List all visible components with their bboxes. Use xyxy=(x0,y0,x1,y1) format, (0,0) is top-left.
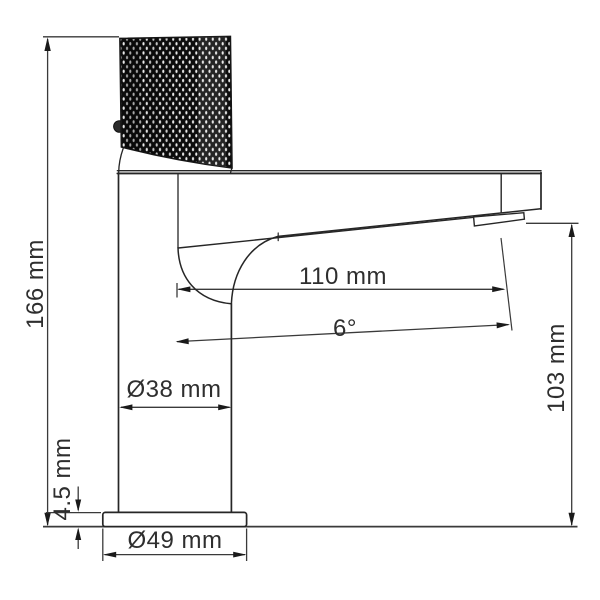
faucet-dimension-drawing: 166 mm 4.5 mm Ø38 mm Ø49 mm 110 mm 6° 10… xyxy=(0,0,600,600)
base-plate xyxy=(103,512,247,526)
label-reach-110: 110 mm xyxy=(299,265,387,289)
handle-neck-left xyxy=(119,148,124,172)
spout-fillet-left xyxy=(178,248,231,304)
dimension-body-diameter-38 xyxy=(119,404,231,410)
faucet-handle xyxy=(114,34,232,174)
label-height-166: 166 mm xyxy=(24,239,48,329)
label-body-diameter-38: Ø38 mm xyxy=(126,378,221,402)
faucet-body-outline xyxy=(103,148,541,526)
handle-neck-right xyxy=(231,168,232,172)
technical-drawing-canvas xyxy=(0,0,600,600)
label-base-diameter-49: Ø49 mm xyxy=(127,529,222,553)
label-angle-6deg: 6° xyxy=(333,317,357,341)
label-spout-height-103: 103 mm xyxy=(545,323,569,413)
label-base-thickness-45: 4.5 mm xyxy=(51,437,75,520)
spout-fillet-right xyxy=(231,236,278,303)
spout-underside-near xyxy=(178,217,474,248)
spout-tip-extension-line xyxy=(501,238,512,331)
